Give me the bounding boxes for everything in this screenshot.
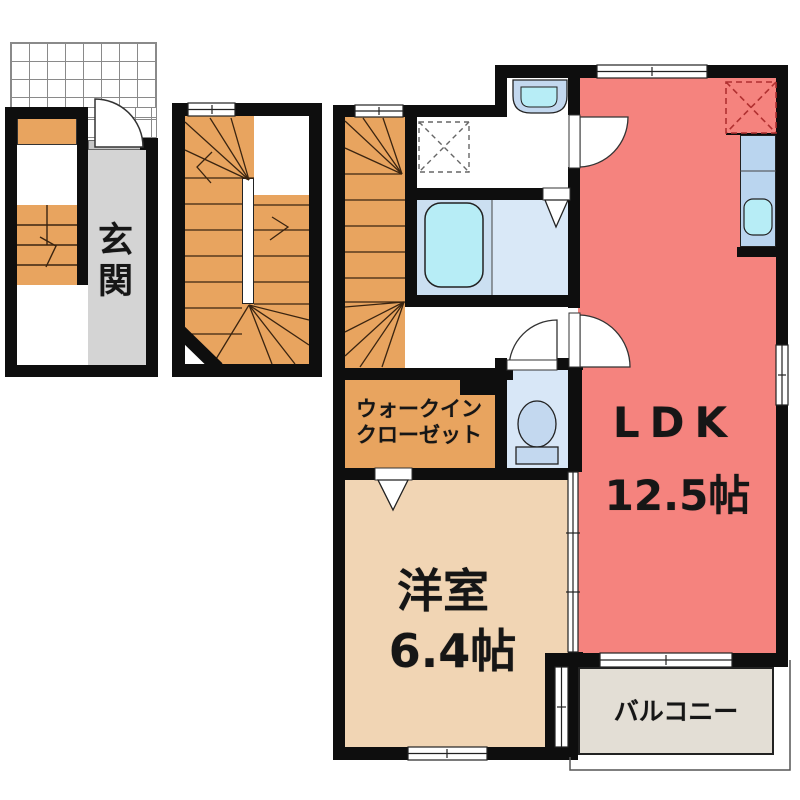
bathroom-dry-area bbox=[492, 200, 568, 295]
wall bbox=[5, 107, 17, 377]
stair-center-divider bbox=[242, 178, 254, 304]
wall bbox=[172, 103, 322, 116]
entry-threshold bbox=[88, 140, 146, 150]
wall bbox=[333, 105, 345, 760]
wall bbox=[405, 117, 417, 302]
wall bbox=[333, 747, 578, 760]
stairs-lower-flight bbox=[17, 205, 77, 285]
wall bbox=[333, 105, 500, 117]
bathroom-tub-area bbox=[417, 200, 492, 295]
genkan-label: 玄関 bbox=[96, 202, 138, 322]
wall bbox=[5, 107, 88, 119]
wall bbox=[495, 65, 788, 78]
wic-label-line2: クローゼット bbox=[348, 422, 490, 448]
wall bbox=[309, 103, 322, 377]
wash-basin-icon bbox=[513, 80, 567, 113]
wall bbox=[568, 655, 578, 757]
entrance-tile-hatch bbox=[10, 42, 157, 109]
wall bbox=[726, 125, 776, 135]
toilet-room-floor bbox=[507, 370, 568, 468]
wall bbox=[405, 188, 545, 200]
wall bbox=[5, 365, 158, 377]
shoe-closet bbox=[17, 115, 77, 145]
wall bbox=[172, 103, 185, 377]
wall bbox=[405, 295, 580, 307]
wall bbox=[412, 468, 578, 480]
washer-space-icon bbox=[419, 122, 469, 172]
wall bbox=[737, 247, 776, 257]
floor-plan: 玄関 ウォークイン クローゼット 洋室 6.4帖 LDK 12.5帖 バルコニー bbox=[0, 0, 800, 800]
wic-label-line1: ウォークイン bbox=[348, 396, 490, 422]
stairs-upper-flight bbox=[345, 117, 405, 368]
wall bbox=[568, 78, 580, 115]
ldk-size: 12.5帖 bbox=[580, 462, 775, 523]
ldk-label: LDK bbox=[580, 398, 770, 447]
western-room-size: 6.4帖 bbox=[350, 615, 555, 681]
western-room-label: 洋室 bbox=[343, 555, 543, 621]
wall bbox=[568, 167, 580, 308]
wall bbox=[333, 468, 375, 480]
wall bbox=[146, 140, 158, 377]
wic-label: ウォークイン クローゼット bbox=[348, 396, 490, 448]
wall bbox=[140, 138, 158, 150]
door-toilet bbox=[507, 320, 557, 370]
balcony-label: バルコニー bbox=[578, 692, 774, 728]
wall bbox=[460, 368, 503, 395]
wall bbox=[776, 65, 788, 667]
wall bbox=[172, 364, 322, 377]
stairwell-right-column bbox=[254, 195, 309, 364]
kitchen-counter bbox=[740, 135, 776, 247]
